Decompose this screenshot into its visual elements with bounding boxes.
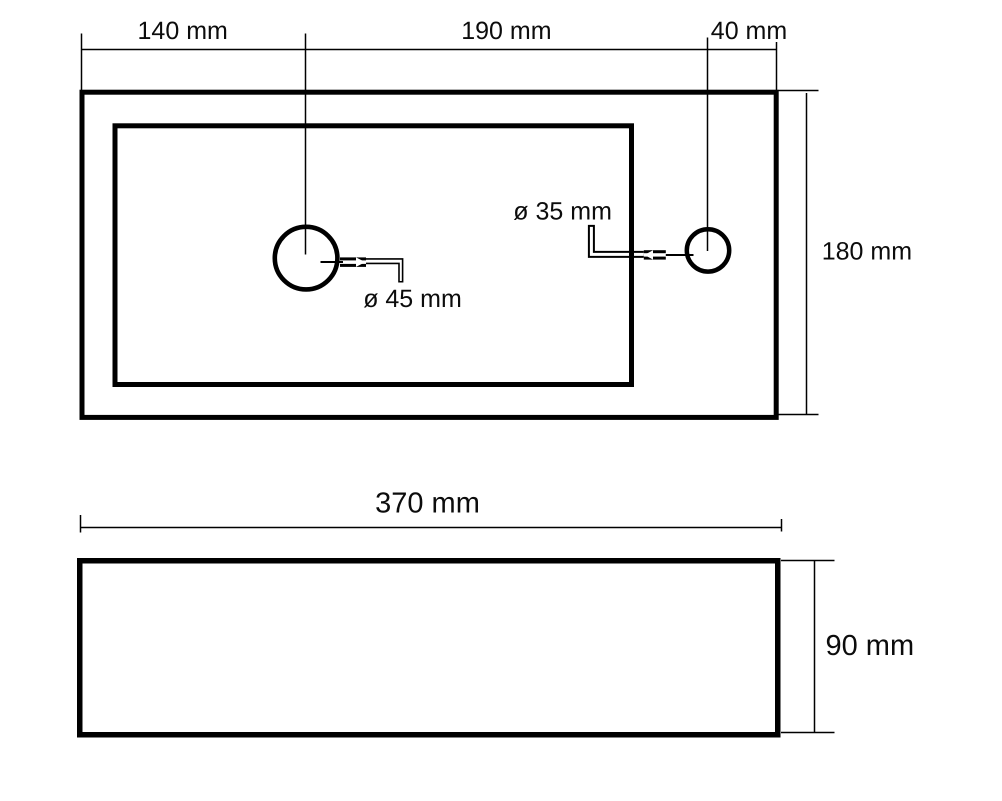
svg-text:ø 45 mm: ø 45 mm xyxy=(363,285,462,313)
svg-text:180 mm: 180 mm xyxy=(822,237,912,265)
svg-text:40 mm: 40 mm xyxy=(711,17,787,45)
svg-text:90 mm: 90 mm xyxy=(825,630,914,662)
svg-text:190 mm: 190 mm xyxy=(461,17,551,45)
svg-text:140 mm: 140 mm xyxy=(138,17,228,45)
svg-text:ø 35 mm: ø 35 mm xyxy=(513,197,612,225)
svg-text:370 mm: 370 mm xyxy=(375,488,480,520)
